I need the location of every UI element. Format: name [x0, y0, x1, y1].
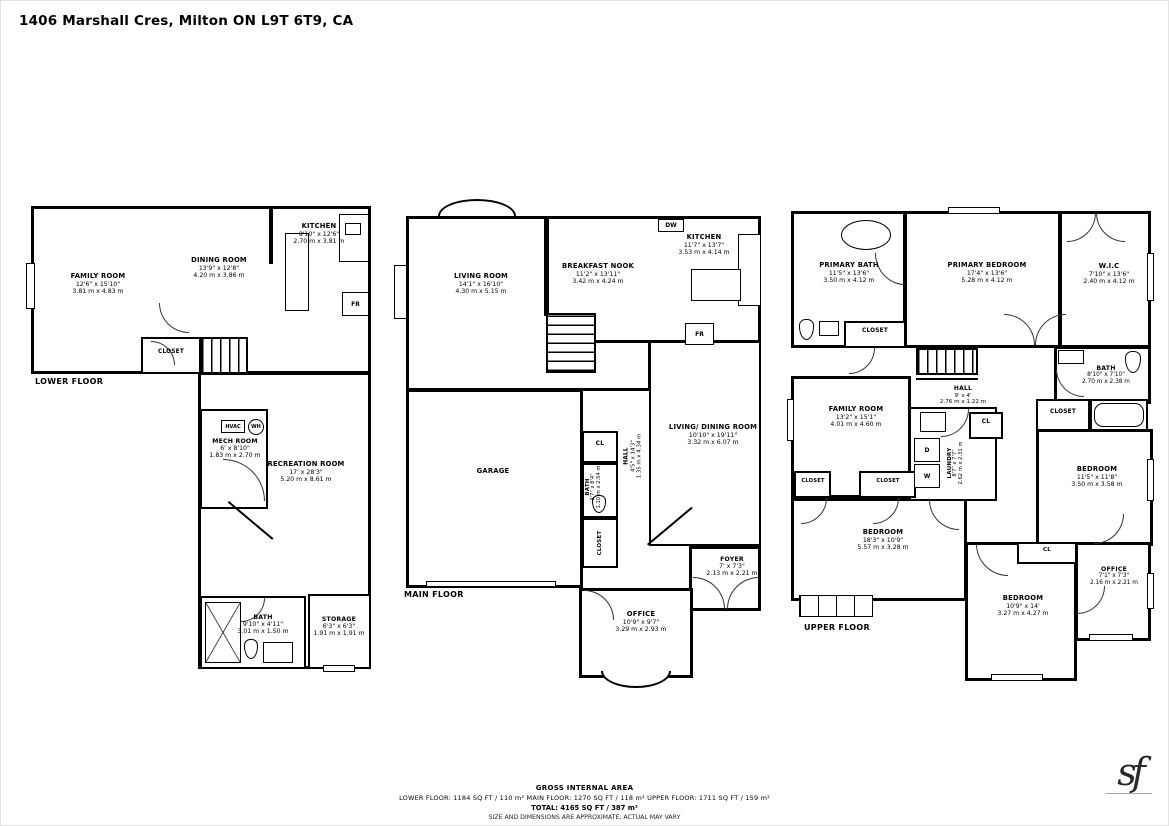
- window: [787, 399, 794, 441]
- room-label-garage: GARAGE: [477, 468, 510, 476]
- kitchen-counter: [738, 234, 761, 306]
- room-label-office-upper: OFFICE 7'1" x 7'3" 2.16 m x 2.21 m: [1090, 566, 1138, 586]
- sink-vanity: [263, 642, 293, 663]
- room-label-breakfast-nook: BREAKFAST NOOK 11'2" x 13'11" 3.42 m x 4…: [562, 263, 634, 285]
- room-label-closet-bath: CLOSET: [1050, 409, 1076, 416]
- dryer-label: D: [925, 447, 930, 454]
- room-label-closet-lower: CLOSET: [158, 349, 184, 356]
- room-label-foyer: FOYER 7' x 7'3" 2.13 m x 2.21 m: [706, 556, 757, 577]
- fridge: FR: [342, 292, 369, 316]
- room-label-bedroom-left: BEDROOM 18'3" x 10'9" 5.57 m x 3.28 m: [857, 529, 908, 551]
- area-disclaimer: SIZE AND DIMENSIONS ARE APPROXIMATE, ACT…: [1, 813, 1168, 822]
- room-label-family-upper: FAMILY ROOM 13'2" x 15'1" 4.01 m x 4.60 …: [829, 406, 884, 428]
- window: [1147, 253, 1154, 301]
- bathtub: [1094, 403, 1144, 427]
- washer-label: W: [924, 473, 931, 480]
- room-label-closet-primary: CLOSET: [862, 328, 888, 335]
- floor-plan-page: 1406 Marshall Cres, Milton ON L9T 6T9, C…: [0, 0, 1169, 826]
- room-label-bath-main: BATH 3'7" x 8'4" 1.10 m x 2.54 m: [585, 466, 603, 509]
- area-summary: GROSS INTERNAL AREA LOWER FLOOR: 1184 SQ…: [1, 783, 1168, 823]
- page-title: 1406 Marshall Cres, Milton ON L9T 6T9, C…: [19, 13, 353, 29]
- sink: [345, 223, 361, 235]
- fridge-label: FR: [695, 331, 704, 338]
- stairs-main: [546, 313, 596, 373]
- room-label-closet-main: CLOSET: [597, 531, 603, 556]
- floor-label-main: MAIN FLOOR: [404, 590, 464, 599]
- room-label-closet-a: CLOSET: [801, 479, 824, 485]
- bay-window: [799, 595, 873, 617]
- hvac-unit: HVAC: [221, 420, 245, 433]
- fridge-label: FR: [351, 301, 360, 308]
- water-heater-label: WH: [251, 424, 261, 430]
- room-label-cl-upper: CL: [982, 419, 991, 426]
- sink: [819, 321, 839, 336]
- stairs-lower: [200, 337, 248, 374]
- room-label-living-room: LIVING ROOM 14'1" x 16'10" 4.30 m x 5.15…: [454, 273, 508, 295]
- area-total: TOTAL: 4165 SQ FT / 387 m²: [1, 803, 1168, 813]
- dishwasher-label: DW: [665, 222, 677, 229]
- bathtub-oval: [841, 220, 891, 250]
- room-label-primary-bath: PRIMARY BATH 11'5" x 13'6" 3.50 m x 4.12…: [819, 262, 879, 284]
- dryer: D: [914, 438, 940, 462]
- room-label-closet-mid: CL: [1043, 547, 1051, 553]
- room-label-hall-upper: HALL 9' x 4' 2.76 m x 1.22 m: [940, 386, 986, 406]
- room-label-dining-room: DINING ROOM 13'9" x 12'8" 4.20 m x 3.86 …: [191, 257, 247, 279]
- water-heater: WH: [248, 419, 264, 435]
- garage: [406, 389, 583, 588]
- room-label-kitchen-main: KITCHEN 11'7" x 13'7" 3.53 m x 4.14 m: [678, 234, 729, 256]
- room-label-bath-lower: BATH 9'10" x 4'11" 3.01 m x 1.50 m: [237, 614, 288, 635]
- room-label-bath-upper: BATH 8'10" x 7'10" 2.70 m x 2.38 m: [1082, 365, 1130, 385]
- room-label-recreation-room: RECREATION ROOM 17' x 28'3" 5.20 m x 8.6…: [267, 461, 344, 483]
- room-label-hall-main: HALL 4'5" x 14'3" 1.35 m x 4.34 m: [623, 434, 642, 479]
- window: [991, 674, 1043, 681]
- window: [394, 265, 407, 319]
- room-label-family-room-lower: FAMILY ROOM 12'6" x 15'10" 3.81 m x 4.83…: [71, 273, 126, 295]
- floor-label-upper: UPPER FLOOR: [804, 623, 870, 632]
- room-label-kitchen-lower: KITCHEN 8'10" x 12'6" 2.70 m x 3.81 m: [293, 223, 344, 245]
- fridge: FR: [685, 323, 714, 345]
- bay-window-arch: [601, 671, 671, 688]
- hvac-label: HVAC: [225, 424, 240, 430]
- bay-window-arch: [438, 199, 516, 216]
- kitchen-island: [691, 269, 741, 301]
- room-label-bedroom-tr: BEDROOM 11'5" x 11'8" 3.50 m x 3.58 m: [1071, 466, 1122, 488]
- room-label-living-dining: LIVING/ DINING ROOM 10'10" x 19'11" 3.32…: [669, 424, 757, 446]
- room-label-office-main: OFFICE 10'9" x 9'7" 3.29 m x 2.93 m: [615, 611, 666, 633]
- window: [323, 665, 355, 672]
- room-label-cl-main: CL: [596, 441, 605, 448]
- room-label-mech-room: MECH ROOM 6' x 8'10" 1.83 m x 2.70 m: [209, 438, 260, 459]
- brand-logo: sf: [1099, 753, 1159, 794]
- window: [948, 207, 1000, 214]
- room-label-bedroom-bottom: BEDROOM 10'9" x 14' 3.27 m x 4.27 m: [997, 595, 1048, 617]
- window: [1147, 459, 1154, 501]
- window: [1147, 573, 1154, 609]
- room-label-primary-bedroom: PRIMARY BEDROOM 17'4" x 13'6" 5.28 m x 4…: [948, 262, 1027, 284]
- window: [1089, 634, 1133, 641]
- dishwasher: DW: [658, 219, 684, 232]
- room-label-laundry: LAUNDRY 8'7" x 7'7" 2.62 m x 2.31 m: [947, 442, 965, 485]
- area-heading: GROSS INTERNAL AREA: [1, 783, 1168, 794]
- wall-segment: [544, 216, 548, 316]
- door-arc: [849, 348, 875, 374]
- room-label-closet-b: CLOSET: [876, 479, 899, 485]
- floor-label-lower: LOWER FLOOR: [35, 377, 103, 386]
- garage-door: [426, 581, 556, 587]
- room-label-wic: W.I.C 7'10" x 13'6" 2.40 m x 4.12 m: [1083, 263, 1134, 285]
- laundry-sink: [920, 412, 946, 432]
- stair-rail: [916, 378, 978, 380]
- shower: [205, 602, 241, 663]
- room-label-storage: STORAGE 6'3" x 6'3" 1.91 m x 1.91 m: [313, 616, 364, 637]
- brand-monogram: sf: [1099, 753, 1159, 791]
- area-breakdown: LOWER FLOOR: 1184 SQ FT / 110 m² MAIN FL…: [1, 794, 1168, 804]
- wall-segment: [269, 206, 273, 264]
- washer: W: [914, 464, 940, 488]
- window: [26, 263, 35, 309]
- sink: [1058, 350, 1084, 364]
- stairs-upper: [916, 348, 978, 375]
